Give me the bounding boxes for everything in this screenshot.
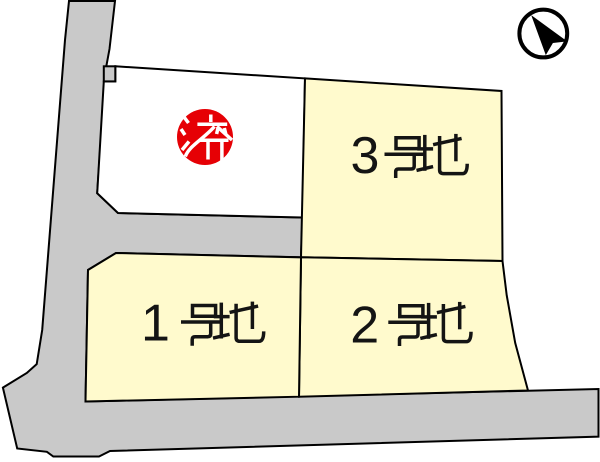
svg-text:3: 3 (351, 127, 380, 185)
svg-text:1: 1 (141, 295, 170, 353)
svg-text:2: 2 (350, 297, 379, 355)
